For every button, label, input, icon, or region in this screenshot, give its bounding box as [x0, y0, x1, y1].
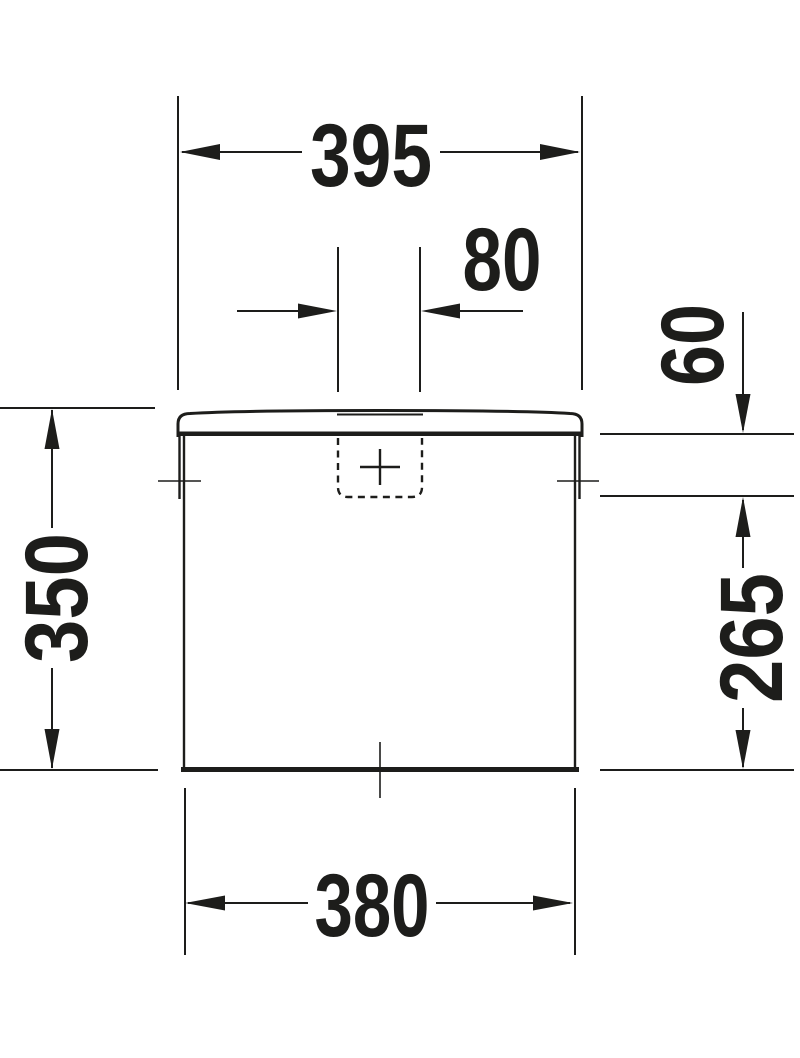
- flush-button: [338, 438, 422, 497]
- cistern-outline: [158, 411, 599, 799]
- dimension-body-width: 380: [185, 788, 575, 955]
- arrowhead-80-left: [298, 304, 337, 319]
- technical-drawing-canvas: 395 80 350 60 265: [0, 0, 800, 1058]
- dimension-inlet-height: 265: [600, 500, 800, 770]
- arrowhead-60-down: [736, 394, 751, 433]
- arrowhead-80-right: [421, 304, 460, 319]
- tank-lid-bottom-edge: [177, 432, 583, 437]
- dimension-button-width: 80: [237, 209, 542, 392]
- dim-label-inlet-height: 265: [701, 573, 800, 703]
- dim-label-lid-width: 395: [310, 105, 432, 205]
- arrowhead-265-bottom: [736, 730, 751, 769]
- dim-label-button-width: 80: [463, 209, 542, 309]
- dim-label-body-width: 380: [315, 855, 430, 955]
- dimension-tank-height: 350: [0, 408, 158, 770]
- dim-label-inlet-top-offset: 60: [642, 304, 742, 386]
- cistern-dimension-drawing: 395 80 350 60 265: [0, 0, 800, 1058]
- dimension-inlet-top-offset: 60: [600, 304, 794, 537]
- dim-label-tank-height: 350: [6, 533, 106, 663]
- arrowhead-350-top: [45, 409, 60, 449]
- arrowhead-380-right: [533, 896, 573, 911]
- arrowhead-350-bottom: [45, 729, 60, 769]
- arrowhead-395-left: [180, 144, 220, 160]
- arrowhead-380-left: [185, 896, 225, 911]
- arrowhead-395-right: [540, 144, 580, 160]
